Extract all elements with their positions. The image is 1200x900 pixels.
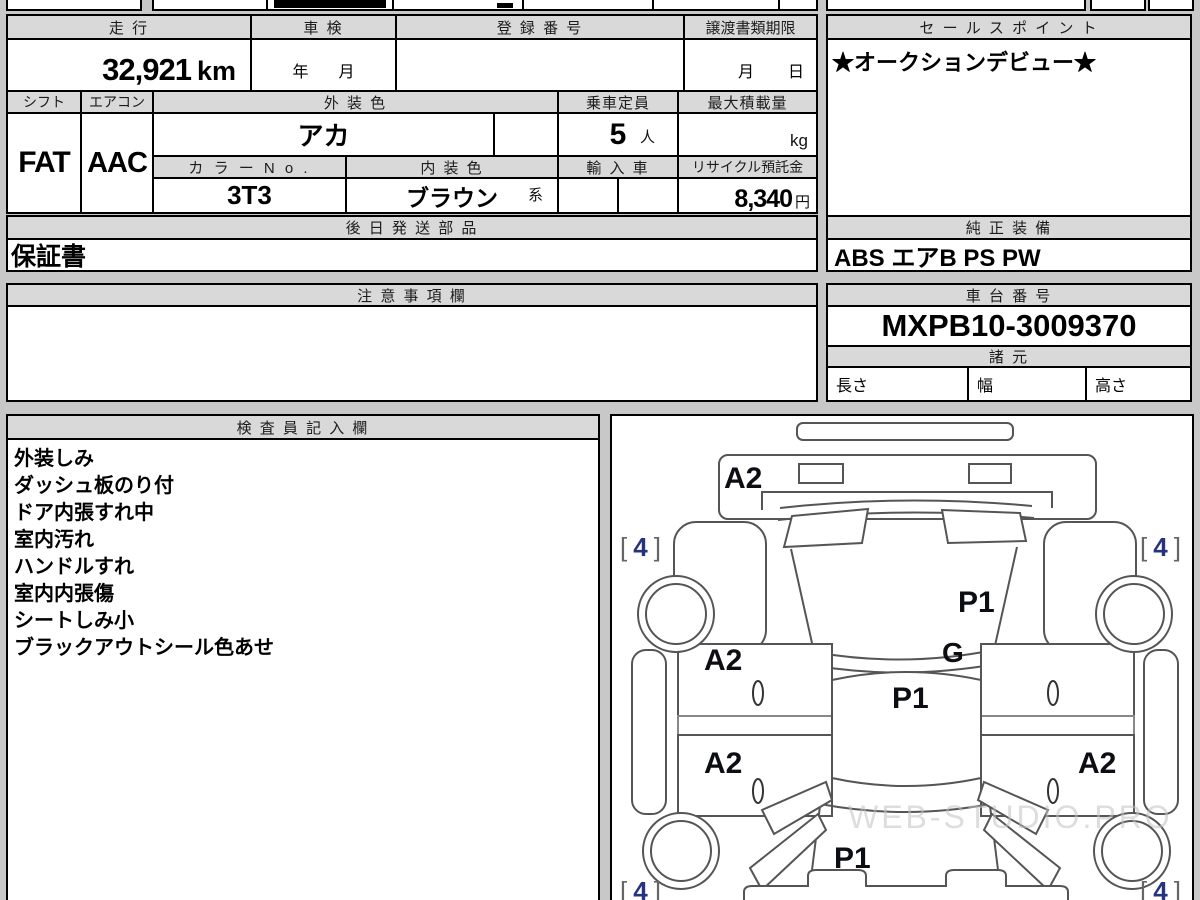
mark-cowl: G bbox=[942, 637, 964, 668]
headlight-left bbox=[799, 464, 843, 483]
top-sliver-cell bbox=[826, 0, 1086, 11]
wiper-window-left bbox=[784, 509, 868, 547]
mark-hood: P1 bbox=[958, 586, 995, 619]
door-divider-left bbox=[678, 716, 832, 735]
mark-door-front-left: A2 bbox=[704, 644, 742, 677]
watermark-text: WEB-STUDIO.PRO bbox=[848, 799, 1173, 835]
car-diagram-box: WEB-STUDIO.PRO A2 P1 G P1 A2 A2 A2 P1 [4… bbox=[610, 414, 1194, 900]
spec-height-cell: 高さ bbox=[1085, 366, 1192, 402]
spec-length-cell: 長さ bbox=[826, 366, 969, 402]
exterior-color-header: 外 装 色 bbox=[152, 90, 559, 114]
front-panel bbox=[719, 455, 1096, 519]
color-no-header: カ ラ ー N o . bbox=[152, 155, 347, 179]
tire-mark-front-left: [4] bbox=[620, 532, 661, 562]
mileage-header: 走 行 bbox=[6, 14, 252, 40]
capacity-header: 乗車定員 bbox=[557, 90, 679, 114]
import-car-value-cell bbox=[557, 177, 619, 214]
sales-point-text: ★オークションデビュー★ bbox=[828, 40, 1190, 82]
inspector-body: 外装しみ ダッシュ板のり付 ドア内張すれ中 室内汚れ ハンドルすれ 室内内張傷 … bbox=[6, 438, 600, 900]
sill-right bbox=[1144, 650, 1178, 814]
mark-roof: P1 bbox=[892, 682, 929, 715]
door-handle-icon bbox=[753, 681, 763, 705]
notes-header: 注 意 事 項 欄 bbox=[6, 283, 818, 307]
recycle-deposit-header: リサイクル預託金 bbox=[677, 155, 818, 179]
registration-value bbox=[395, 38, 685, 92]
top-sliver-cell bbox=[152, 0, 268, 11]
top-sliver-cell bbox=[6, 0, 142, 11]
sales-point-body: ★オークションデビュー★ bbox=[826, 38, 1192, 217]
inspector-note: 室内汚れ bbox=[14, 527, 592, 554]
registration-header: 登 録 番 号 bbox=[395, 14, 685, 40]
later-parts-header: 後 日 発 送 部 品 bbox=[6, 215, 818, 240]
color-no-value: 3T3 bbox=[152, 177, 347, 214]
inspector-note: 外装しみ bbox=[14, 446, 592, 473]
genuine-equipment-value: ABS エアB PS PW bbox=[826, 238, 1192, 272]
door-handle-icon bbox=[753, 779, 763, 803]
interior-color-header: 内 装 色 bbox=[345, 155, 559, 179]
wiper-window-right bbox=[942, 510, 1026, 543]
car-condition-diagram: WEB-STUDIO.PRO A2 P1 G P1 A2 A2 A2 P1 [4… bbox=[612, 416, 1192, 900]
exterior-color-extra-cell bbox=[493, 112, 559, 157]
import-car-value-cell bbox=[617, 177, 679, 214]
inspector-note: シートしみ小 bbox=[14, 608, 592, 635]
inspector-note: 室内内張傷 bbox=[14, 581, 592, 608]
top-sliver-cell bbox=[522, 0, 654, 11]
spec-width-cell: 幅 bbox=[967, 366, 1087, 402]
cutoff-text-blob bbox=[497, 3, 513, 8]
shift-value: FAT bbox=[6, 112, 82, 214]
top-sliver-cell bbox=[1090, 0, 1146, 11]
rear-bumper bbox=[744, 870, 1068, 900]
capacity-value: 5 人 bbox=[557, 112, 679, 157]
tire-mark-rear-left: [4] bbox=[620, 876, 661, 900]
inspection-value: 年月 bbox=[250, 38, 397, 92]
front-bumper bbox=[797, 423, 1013, 440]
later-parts-value: 保証書 bbox=[6, 238, 818, 272]
inspection-header: 車 検 bbox=[250, 14, 397, 40]
inspector-note: ダッシュ板のり付 bbox=[14, 473, 592, 500]
sales-point-header: セ ー ル ス ポ イ ン ト bbox=[826, 14, 1192, 40]
interior-color-value: ブラウン 系 bbox=[345, 177, 559, 214]
headlight-right bbox=[969, 464, 1011, 483]
exterior-color-value: アカ bbox=[152, 112, 495, 157]
inspector-header: 検 査 員 記 入 欄 bbox=[6, 414, 600, 440]
mark-door-rear-left: A2 bbox=[704, 747, 742, 780]
door-front-right bbox=[981, 644, 1134, 718]
sill-left bbox=[632, 650, 666, 814]
inspector-note: ブラックアウトシール色あせ bbox=[14, 635, 592, 662]
mark-door-rear-right: A2 bbox=[1078, 747, 1116, 780]
cutoff-text-blob bbox=[274, 0, 386, 8]
tire-mark-rear-right: [4] bbox=[1140, 876, 1181, 900]
wheel-front-left bbox=[638, 576, 714, 652]
mileage-value: 32,921km bbox=[6, 38, 252, 92]
top-sliver-cell bbox=[778, 0, 818, 11]
inspector-note: ドア内張すれ中 bbox=[14, 500, 592, 527]
specs-header: 諸 元 bbox=[826, 345, 1192, 368]
aircon-value: AAC bbox=[80, 112, 154, 214]
tire-mark-front-right: [4] bbox=[1140, 532, 1181, 562]
mark-trunk: P1 bbox=[834, 842, 871, 875]
aircon-header: エアコン bbox=[80, 90, 154, 114]
shift-header: シフト bbox=[6, 90, 82, 114]
max-load-header: 最大積載量 bbox=[677, 90, 818, 114]
genuine-equipment-header: 純 正 装 備 bbox=[826, 215, 1192, 240]
top-sliver-cell bbox=[652, 0, 780, 11]
inspector-note: ハンドルすれ bbox=[14, 554, 592, 581]
deadline-header: 譲渡書類期限 bbox=[683, 14, 818, 40]
max-load-value: kg bbox=[677, 112, 818, 157]
auction-sheet: 走 行 車 検 登 録 番 号 譲渡書類期限 32,921km 年月 月日 シフ… bbox=[0, 0, 1200, 900]
notes-body bbox=[6, 305, 818, 402]
import-car-header: 輸 入 車 bbox=[557, 155, 679, 179]
wheel-front-right bbox=[1096, 576, 1172, 652]
mark-front-panel: A2 bbox=[724, 462, 762, 495]
door-divider-right bbox=[981, 716, 1134, 735]
deadline-value: 月日 bbox=[683, 38, 818, 92]
door-handle-icon bbox=[1048, 681, 1058, 705]
chassis-value: MXPB10-3009370 bbox=[826, 305, 1192, 347]
recycle-deposit-value: 8,340円 bbox=[677, 177, 818, 214]
door-front-left bbox=[678, 644, 832, 718]
chassis-header: 車 台 番 号 bbox=[826, 283, 1192, 307]
top-sliver-cell bbox=[1148, 0, 1194, 11]
